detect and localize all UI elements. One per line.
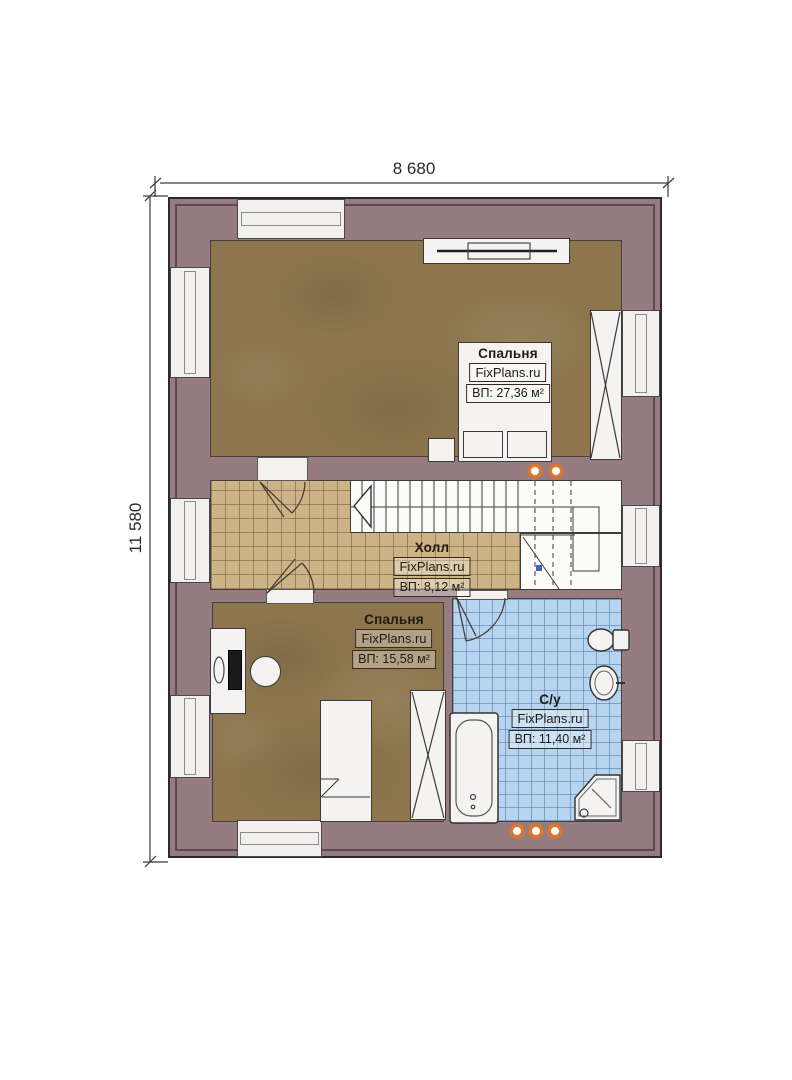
watermark: FixPlans.ru (469, 363, 546, 382)
window-left-bedroom-bottom (170, 695, 210, 778)
single-bed (320, 700, 372, 822)
window-glass (241, 212, 341, 226)
pillow (507, 431, 547, 458)
room-area: ВП: 8,12 м² (394, 578, 471, 597)
window-glass (184, 271, 196, 373)
watermark: FixPlans.ru (355, 629, 432, 648)
dimension-height-label: 11 580 (126, 503, 146, 554)
stair-flight (350, 480, 622, 533)
window-bottom-wall (237, 820, 322, 857)
window-right-stair (622, 505, 660, 567)
watermark: FixPlans.ru (511, 709, 588, 728)
room-bedroom-top-floor (210, 240, 622, 457)
window-right-bedroom-top (622, 310, 660, 397)
window-glass (635, 314, 647, 394)
wardrobe-bottom (410, 690, 446, 820)
door-sill-bedroom-top (257, 457, 308, 481)
wall-light-dot (549, 464, 563, 478)
room-name: С/у (539, 692, 561, 707)
wall-light-dot (548, 824, 562, 838)
label-hall: Холл FixPlans.ru ВП: 8,12 м² (393, 540, 470, 597)
window-left-hall (170, 498, 210, 583)
dimension-width-label: 8 680 (393, 159, 436, 179)
window-glass (184, 698, 196, 774)
window-top-wall (237, 199, 345, 239)
floor-plan-canvas: 8 680 11 580 (0, 0, 792, 1080)
room-area: ВП: 11,40 м² (509, 730, 592, 749)
room-name: Спальня (478, 346, 538, 361)
tv-console (423, 238, 570, 264)
label-bedroom-bottom: Спальня FixPlans.ru ВП: 15,58 м² (352, 612, 436, 669)
window-right-bathroom (622, 740, 660, 792)
wall-light-dot (529, 824, 543, 838)
label-bathroom: С/у FixPlans.ru ВП: 11,40 м² (509, 692, 592, 749)
window-glass (635, 743, 647, 790)
window-glass (184, 501, 196, 579)
watermark: FixPlans.ru (393, 557, 470, 576)
room-area: ВП: 27,36 м² (466, 384, 550, 403)
room-name: Холл (415, 540, 450, 555)
wardrobe-top (590, 310, 622, 460)
wall-light-dot (510, 824, 524, 838)
stair-winder (520, 533, 622, 590)
window-glass (240, 832, 318, 845)
wall-light-dot (528, 464, 542, 478)
label-bedroom-top: Спальня FixPlans.ru ВП: 27,36 м² (466, 346, 550, 403)
pillow (463, 431, 503, 458)
desk-chair (250, 656, 281, 687)
window-glass (635, 508, 647, 564)
door-sill-bedroom-bottom (266, 589, 314, 604)
room-area: ВП: 15,58 м² (352, 650, 436, 669)
window-left-bedroom-top (170, 267, 210, 378)
room-name: Спальня (364, 612, 424, 627)
nightstand (428, 438, 455, 462)
computer-monitor (228, 650, 242, 690)
